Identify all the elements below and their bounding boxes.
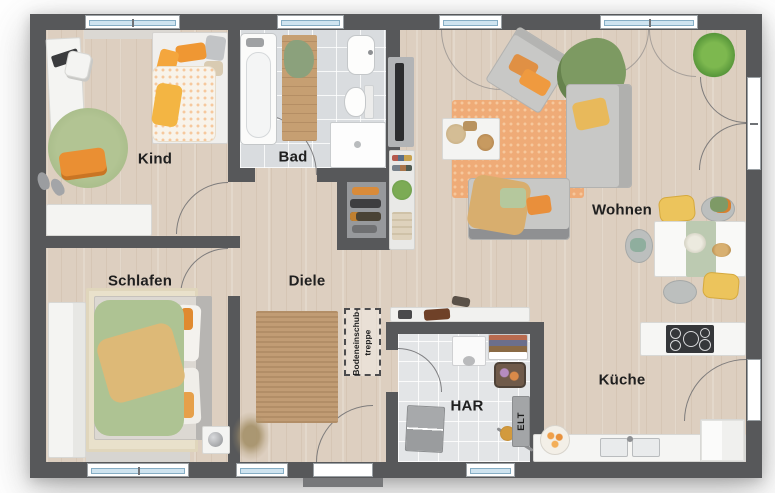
speaker (208, 432, 223, 447)
towel-green (284, 40, 314, 78)
room-label-har: HAR (450, 398, 483, 415)
window-kind (85, 15, 180, 29)
tv (395, 63, 404, 141)
fruit-bowl (540, 425, 570, 455)
jute-rug (256, 311, 338, 423)
attic-label-line1: Bodeneinschub- (351, 309, 362, 376)
shower-drain (354, 141, 361, 148)
shoes-row-2 (350, 199, 381, 208)
attic-stairs-box: Bodeneinschub- treppe (344, 308, 381, 376)
napkin-teal (630, 238, 646, 252)
dried-plant (232, 412, 270, 460)
window-schlafen (87, 463, 189, 477)
wardrobe (48, 302, 86, 458)
shelf-books (392, 155, 412, 161)
corner-plant (693, 32, 735, 78)
sink-basin-left (600, 438, 628, 457)
room-label-kueche: Küche (599, 372, 646, 389)
window-har (466, 463, 515, 477)
shoes-row-1 (352, 187, 379, 195)
kind-sideboard (46, 204, 152, 236)
room-label-wohnen: Wohnen (592, 202, 652, 219)
table-basket (463, 121, 477, 131)
shelf-towels (392, 212, 412, 240)
room-label-schlafen: Schlafen (108, 273, 172, 290)
sofa-pillow-green (500, 188, 526, 208)
window-wohnen-right (600, 15, 698, 29)
window-wohnen-left (439, 15, 502, 29)
console-item (398, 310, 412, 319)
drying-rack (488, 334, 528, 360)
wall-kind-schlafen (46, 236, 240, 248)
kind-pillow-gray (203, 35, 226, 62)
dining-chair-yellow-1 (658, 194, 697, 224)
toilet-bowl (344, 87, 366, 117)
dining-chair-yellow-2 (702, 271, 740, 300)
wall-bad-bottom-left (228, 168, 255, 182)
table-flowers (684, 233, 706, 253)
sink-faucet (627, 436, 633, 442)
wall-har-top (386, 322, 544, 334)
wall-kind-bad (228, 30, 240, 178)
room-label-diele: Diele (289, 273, 326, 290)
bathtub-inner (246, 52, 271, 138)
shoes-row-3 (350, 212, 381, 221)
kitchen-appliance (700, 419, 745, 462)
terrace-door-leaves (747, 77, 761, 170)
elt-label: ELT (516, 412, 527, 431)
table-bowl (477, 134, 494, 151)
sofa-pillow-orange (526, 194, 552, 215)
wall-har-left-lower (386, 392, 398, 462)
window-diele (236, 463, 288, 477)
entry-door-leaf (313, 463, 373, 477)
shelf-books-2 (392, 165, 412, 171)
attic-label-line2: treppe (363, 309, 374, 376)
napkin-green (710, 197, 728, 212)
elt-cabinet: ELT (512, 396, 530, 447)
washer-door (463, 356, 475, 366)
shoes-row-4 (352, 225, 377, 233)
kitchen-door-leaf (747, 359, 761, 421)
washbasin (347, 35, 375, 75)
window-bad (277, 15, 344, 29)
cooktop (666, 325, 714, 353)
room-label-bad: Bad (279, 149, 308, 166)
laundry-basket (494, 362, 526, 388)
table-dish (712, 243, 731, 257)
sink-basin-right (632, 438, 660, 457)
shelf-plant (392, 180, 412, 200)
dining-chair-gray-3 (663, 280, 697, 304)
bathtub-faucet (246, 38, 264, 47)
entry-step (303, 478, 383, 487)
room-label-kind: Kind (138, 151, 172, 168)
basin-faucet (368, 50, 373, 55)
console-clutch (424, 308, 451, 321)
floor-plan: ELT Bodeneinschub- treppe Kind Bad Wohne… (0, 0, 775, 493)
wall-har-left-upper (386, 334, 398, 350)
storage-boxes (405, 405, 445, 453)
